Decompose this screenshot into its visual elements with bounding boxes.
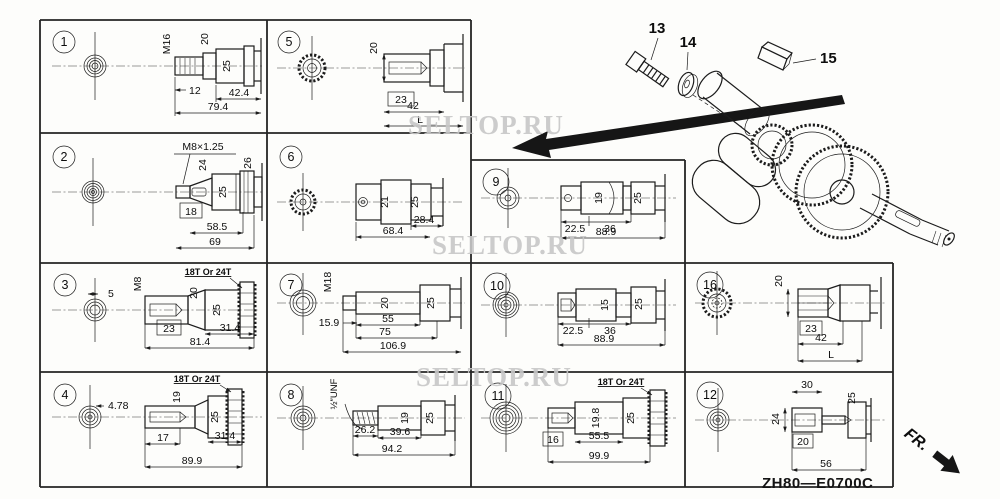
dimensions: 19.8 25 16 55.5 99.9 [543,408,650,462]
gear-note: 18T Or 24T [185,267,232,277]
dim-label: 25 [625,412,637,424]
dim-label: 31.4 [220,322,241,334]
dim-label: 25 [424,412,436,424]
dimensions: 20 23 42 L [773,275,862,361]
part-number-badge: 12 [697,382,723,408]
dim-label: 17 [157,432,169,444]
dim-label: M16 [161,34,173,55]
bolt-leader-line [651,38,658,60]
dim-label: 22.5 [563,325,584,337]
dim-label: 99.9 [589,450,610,462]
dim-label: 75 [379,326,391,338]
part-number: 2 [61,150,68,164]
part-number-badge: 3 [54,274,76,296]
part-number: 5 [286,35,293,49]
dim-label: 19 [171,391,183,403]
dim-label: 42 [815,332,827,344]
part-number: 3 [62,278,69,292]
dim-label: 69 [209,236,221,248]
dim-label: 79.4 [208,101,229,113]
dim-label: 42.4 [229,87,250,99]
dim-label: 20 [199,33,211,45]
cell-3: 3 5 18T Or 24T M [40,263,267,372]
washer-leader-line [687,52,688,70]
dim-label: 20 [188,287,200,299]
dim-label: 56 [820,458,832,470]
part-number-badge: 8 [280,384,302,406]
dim-label: 94.2 [382,443,403,455]
dim-label: 25 [211,304,223,316]
dim-label: M8×1.25 [182,141,223,153]
dim-label: 25 [221,60,233,72]
shaft-end-view [84,278,106,342]
part-number-badge: 1 [53,31,75,53]
part-number: 4 [62,388,69,402]
part-number: 10 [490,279,504,293]
dim-label: 81.4 [190,336,211,348]
dim-label: 25 [409,196,421,208]
dim-label: 24 [770,413,782,425]
part-number-badge: 7 [280,274,302,296]
dim-label: 25 [633,298,645,310]
dim-label: 26 [242,157,254,169]
dim-label: 19.8 [590,408,602,429]
dim-label: 5 [108,288,114,300]
dim-label: 28.4 [414,214,435,226]
dim-label: ½″UNF [329,378,340,409]
dim-label: 25 [209,411,221,423]
cell-4: 4 4.78 18T Or 24T [40,372,267,487]
part-number-badge: 5 [278,31,300,53]
dim-label: L [828,349,834,361]
part-number: 7 [288,278,295,292]
front-arrow-icon [929,446,967,481]
dim-label: 20 [379,297,391,309]
washer-part-number: 14 [680,34,697,51]
cell-7: 7 M18 20 25 15.9 [267,263,471,372]
gear-end-view [299,36,325,100]
dim-label: 12 [189,85,201,97]
dimensions: M8×1.25 24 26 25 18 58.5 69 [174,141,254,248]
bolt-icon [626,51,670,89]
watermark: SELTOP.RU [408,110,564,141]
dimensions: 30 25 24 20 56 [770,379,866,470]
gear-note: 18T Or 24T [598,377,645,387]
drawing-code: ZH80—E0700C [762,475,873,492]
dim-label: 23 [395,94,407,106]
front-direction: FR. [870,400,1000,499]
parts-diagram-page: 1 M16 20 25 [0,0,1000,499]
dim-label: 20 [797,436,809,448]
part-number: 6 [288,150,295,164]
dim-label: 55 [382,313,394,325]
part-number: 8 [288,388,295,402]
dim-label: 15 [599,299,611,311]
dim-label: 30 [801,379,813,391]
dim-label: M18 [322,272,334,293]
dim-label: M8 [132,277,144,292]
dim-label: 25 [846,392,858,404]
dimensions: M18 20 25 15.9 55 75 106.9 [319,272,461,352]
dimensions: 21 25 28.4 68.4 [356,196,443,241]
watermark: SELTOP.RU [432,230,588,261]
shaft-end-view [84,32,106,100]
part-number-badge: 4 [54,384,76,406]
key-leader-line [793,59,816,63]
dim-label: 21 [379,196,391,208]
washer-icon [675,70,700,99]
dim-label: 55.5 [589,430,610,442]
dim-label: 18 [185,206,197,218]
dim-label: 26.2 [355,424,376,436]
key-icon [758,42,792,70]
cell-2: 2 M8×1.25 [40,133,267,263]
dim-label: 68.4 [383,225,404,237]
watermark: SELTOP.RU [416,362,572,393]
dim-label: 89.9 [182,455,203,467]
front-label: FR. [901,425,932,454]
dim-label: 39.6 [390,426,411,438]
crankshaft-drawing [684,67,956,247]
dim-label: 106.9 [380,340,406,352]
key-part-number: 15 [820,50,837,67]
gear-note: 18T Or 24T [174,374,221,384]
dim-label: 25 [217,186,229,198]
part-number: 1 [61,35,68,49]
bolt-part-number: 13 [649,20,666,37]
dim-label: 25 [425,297,437,309]
dim-label: 23 [163,323,175,335]
part-number-badge: 2 [53,146,75,168]
dim-label: 58.5 [207,221,228,233]
front-arrow-group: FR. [900,424,966,482]
dim-label: 16 [547,434,559,446]
dim-label: 20 [368,42,380,54]
dim-label: 15.9 [319,317,340,329]
part-number-badge: 6 [280,146,302,168]
cell-12: 12 30 25 24 [685,372,893,487]
dim-label: 24 [197,159,209,171]
dim-label: 19 [399,412,411,424]
part-number: 12 [703,388,717,402]
cell-1: 1 M16 20 25 [40,20,267,133]
dim-label: 4.78 [108,400,129,412]
dim-label: 88.9 [594,333,615,345]
dim-label: 31.4 [215,430,236,442]
